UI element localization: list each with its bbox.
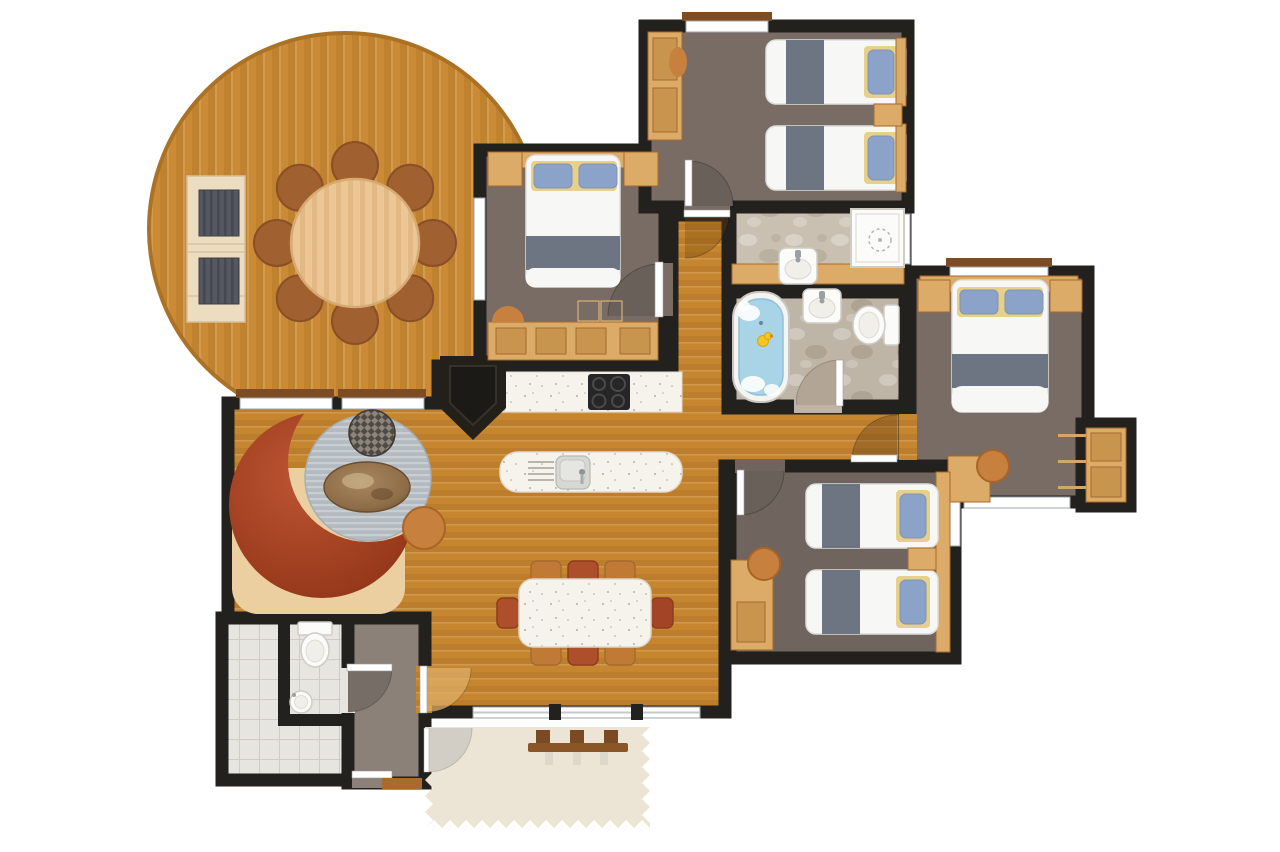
nightstand <box>488 152 522 186</box>
double-bed <box>952 280 1048 412</box>
blanket <box>786 126 824 190</box>
dining-table <box>519 579 651 647</box>
pillow <box>868 50 894 94</box>
blanket <box>822 570 860 634</box>
headboard <box>896 124 906 192</box>
double-bed <box>526 155 620 287</box>
coffee-table-marbling <box>342 473 374 489</box>
shower <box>851 209 904 267</box>
deck-lounger <box>187 176 245 322</box>
pillow <box>900 494 926 538</box>
door-leaf <box>737 470 744 515</box>
blanket <box>952 354 1048 388</box>
kitchen-island <box>500 452 682 492</box>
nightstand <box>918 280 950 312</box>
door-leaf <box>352 771 392 778</box>
single-bed <box>806 570 938 634</box>
wc-partition-wall <box>278 618 290 726</box>
window-sill <box>236 389 334 398</box>
hob <box>588 374 630 410</box>
front-door-leaf <box>424 728 429 772</box>
lounger-cushion <box>199 258 239 304</box>
bath-drain <box>759 321 763 325</box>
pillow <box>1005 290 1043 314</box>
pouf-orange <box>403 507 445 549</box>
blanket <box>822 484 860 548</box>
door-leaf <box>420 666 427 713</box>
window <box>240 398 332 409</box>
window-sill <box>682 12 772 21</box>
stool <box>669 47 687 77</box>
clothes-rail <box>1058 434 1086 437</box>
bath-foam <box>741 376 765 392</box>
window <box>474 198 485 300</box>
nightstand <box>874 104 902 126</box>
round-washbasin <box>290 691 312 713</box>
door-leaf <box>655 262 663 317</box>
window-mullion <box>549 704 561 720</box>
pillow <box>900 580 926 624</box>
deck-round-table <box>291 179 419 307</box>
pillow <box>868 136 894 180</box>
single-bed <box>766 38 906 106</box>
dining-chair <box>651 598 673 628</box>
toilet <box>853 305 899 345</box>
bathtub <box>733 292 789 402</box>
pouf-checkered <box>349 410 395 456</box>
door-leaf <box>684 210 730 217</box>
washbasin <box>803 289 841 323</box>
blanket <box>526 236 620 270</box>
window-sill <box>946 258 1052 267</box>
headboard <box>896 38 906 106</box>
wc-partition-wall <box>278 714 348 726</box>
lounger-cushion <box>199 190 239 236</box>
bath-foam <box>738 301 750 311</box>
clothes-rail <box>1058 460 1086 463</box>
bath-foam <box>764 384 780 396</box>
faucet <box>795 250 801 258</box>
desk-chair <box>977 450 1009 482</box>
dining-chair <box>497 598 519 628</box>
nightstand <box>908 548 936 570</box>
door-leaf <box>685 160 692 206</box>
pillow <box>960 290 998 314</box>
storage-bench <box>488 322 658 360</box>
floor-plan <box>0 0 1280 852</box>
entrance-threshold <box>382 778 422 789</box>
door-leaf <box>347 664 392 671</box>
door-leaf <box>836 360 843 406</box>
window <box>686 21 768 32</box>
pillow <box>579 164 617 188</box>
floor-plan-canvas <box>0 0 1280 852</box>
coffee-table-marbling <box>371 488 393 500</box>
pillow <box>534 164 572 188</box>
faucet <box>292 693 296 697</box>
faucet <box>819 291 825 299</box>
nightstand <box>624 152 658 186</box>
toilet <box>298 622 332 667</box>
nightstand <box>1050 280 1082 312</box>
desk-chair <box>748 548 780 580</box>
blanket <box>786 40 824 104</box>
window-mullion <box>631 704 643 720</box>
window-sill <box>338 389 426 398</box>
clothes-rail <box>1058 486 1086 489</box>
single-bed <box>766 124 906 192</box>
washbasin <box>779 248 817 284</box>
window <box>342 398 424 409</box>
door-leaf <box>851 455 897 462</box>
window <box>950 496 960 546</box>
door-opening <box>899 414 917 460</box>
single-bed <box>806 484 938 548</box>
